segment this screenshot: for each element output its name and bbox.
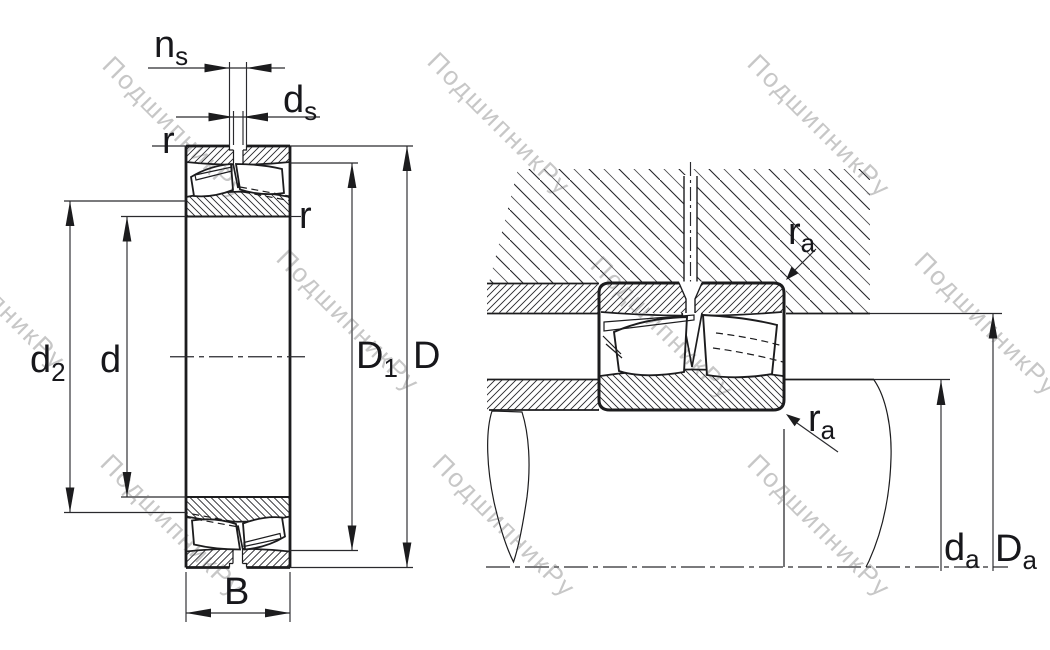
label-ds: ds — [283, 79, 317, 126]
label-D1: D1 — [356, 335, 398, 383]
bearing-section-bottom — [186, 498, 290, 568]
label-B: B — [224, 571, 249, 613]
bearing-section-top — [186, 146, 290, 216]
label-r-right: r — [299, 195, 312, 237]
label-D: D — [413, 335, 440, 377]
shaft-abutment-ring — [487, 380, 599, 411]
left-view-bearing-cross-section: ns ds r r d2 d D1 D B — [30, 24, 440, 622]
label-ra-bottom: ra — [808, 398, 836, 445]
label-d2: d2 — [30, 339, 66, 387]
right-view-mounting-drawing: ra ra da Da — [486, 162, 1037, 575]
housing-abutment-ring — [487, 285, 599, 314]
bearing-drawings-svg: ns ds r r d2 d D1 D B — [0, 0, 1050, 650]
bearing-drawing-page: ns ds r r d2 d D1 D B — [0, 0, 1050, 650]
dimension-Da — [870, 314, 1002, 572]
mounted-bearing-section — [599, 282, 784, 411]
shaft-shoulder-section — [488, 411, 529, 562]
label-r-top: r — [162, 120, 175, 162]
label-ns: ns — [154, 24, 188, 71]
label-Da: Da — [995, 528, 1037, 575]
label-da: da — [944, 527, 980, 574]
dimension-d2 — [64, 201, 186, 513]
label-d: d — [100, 339, 121, 381]
